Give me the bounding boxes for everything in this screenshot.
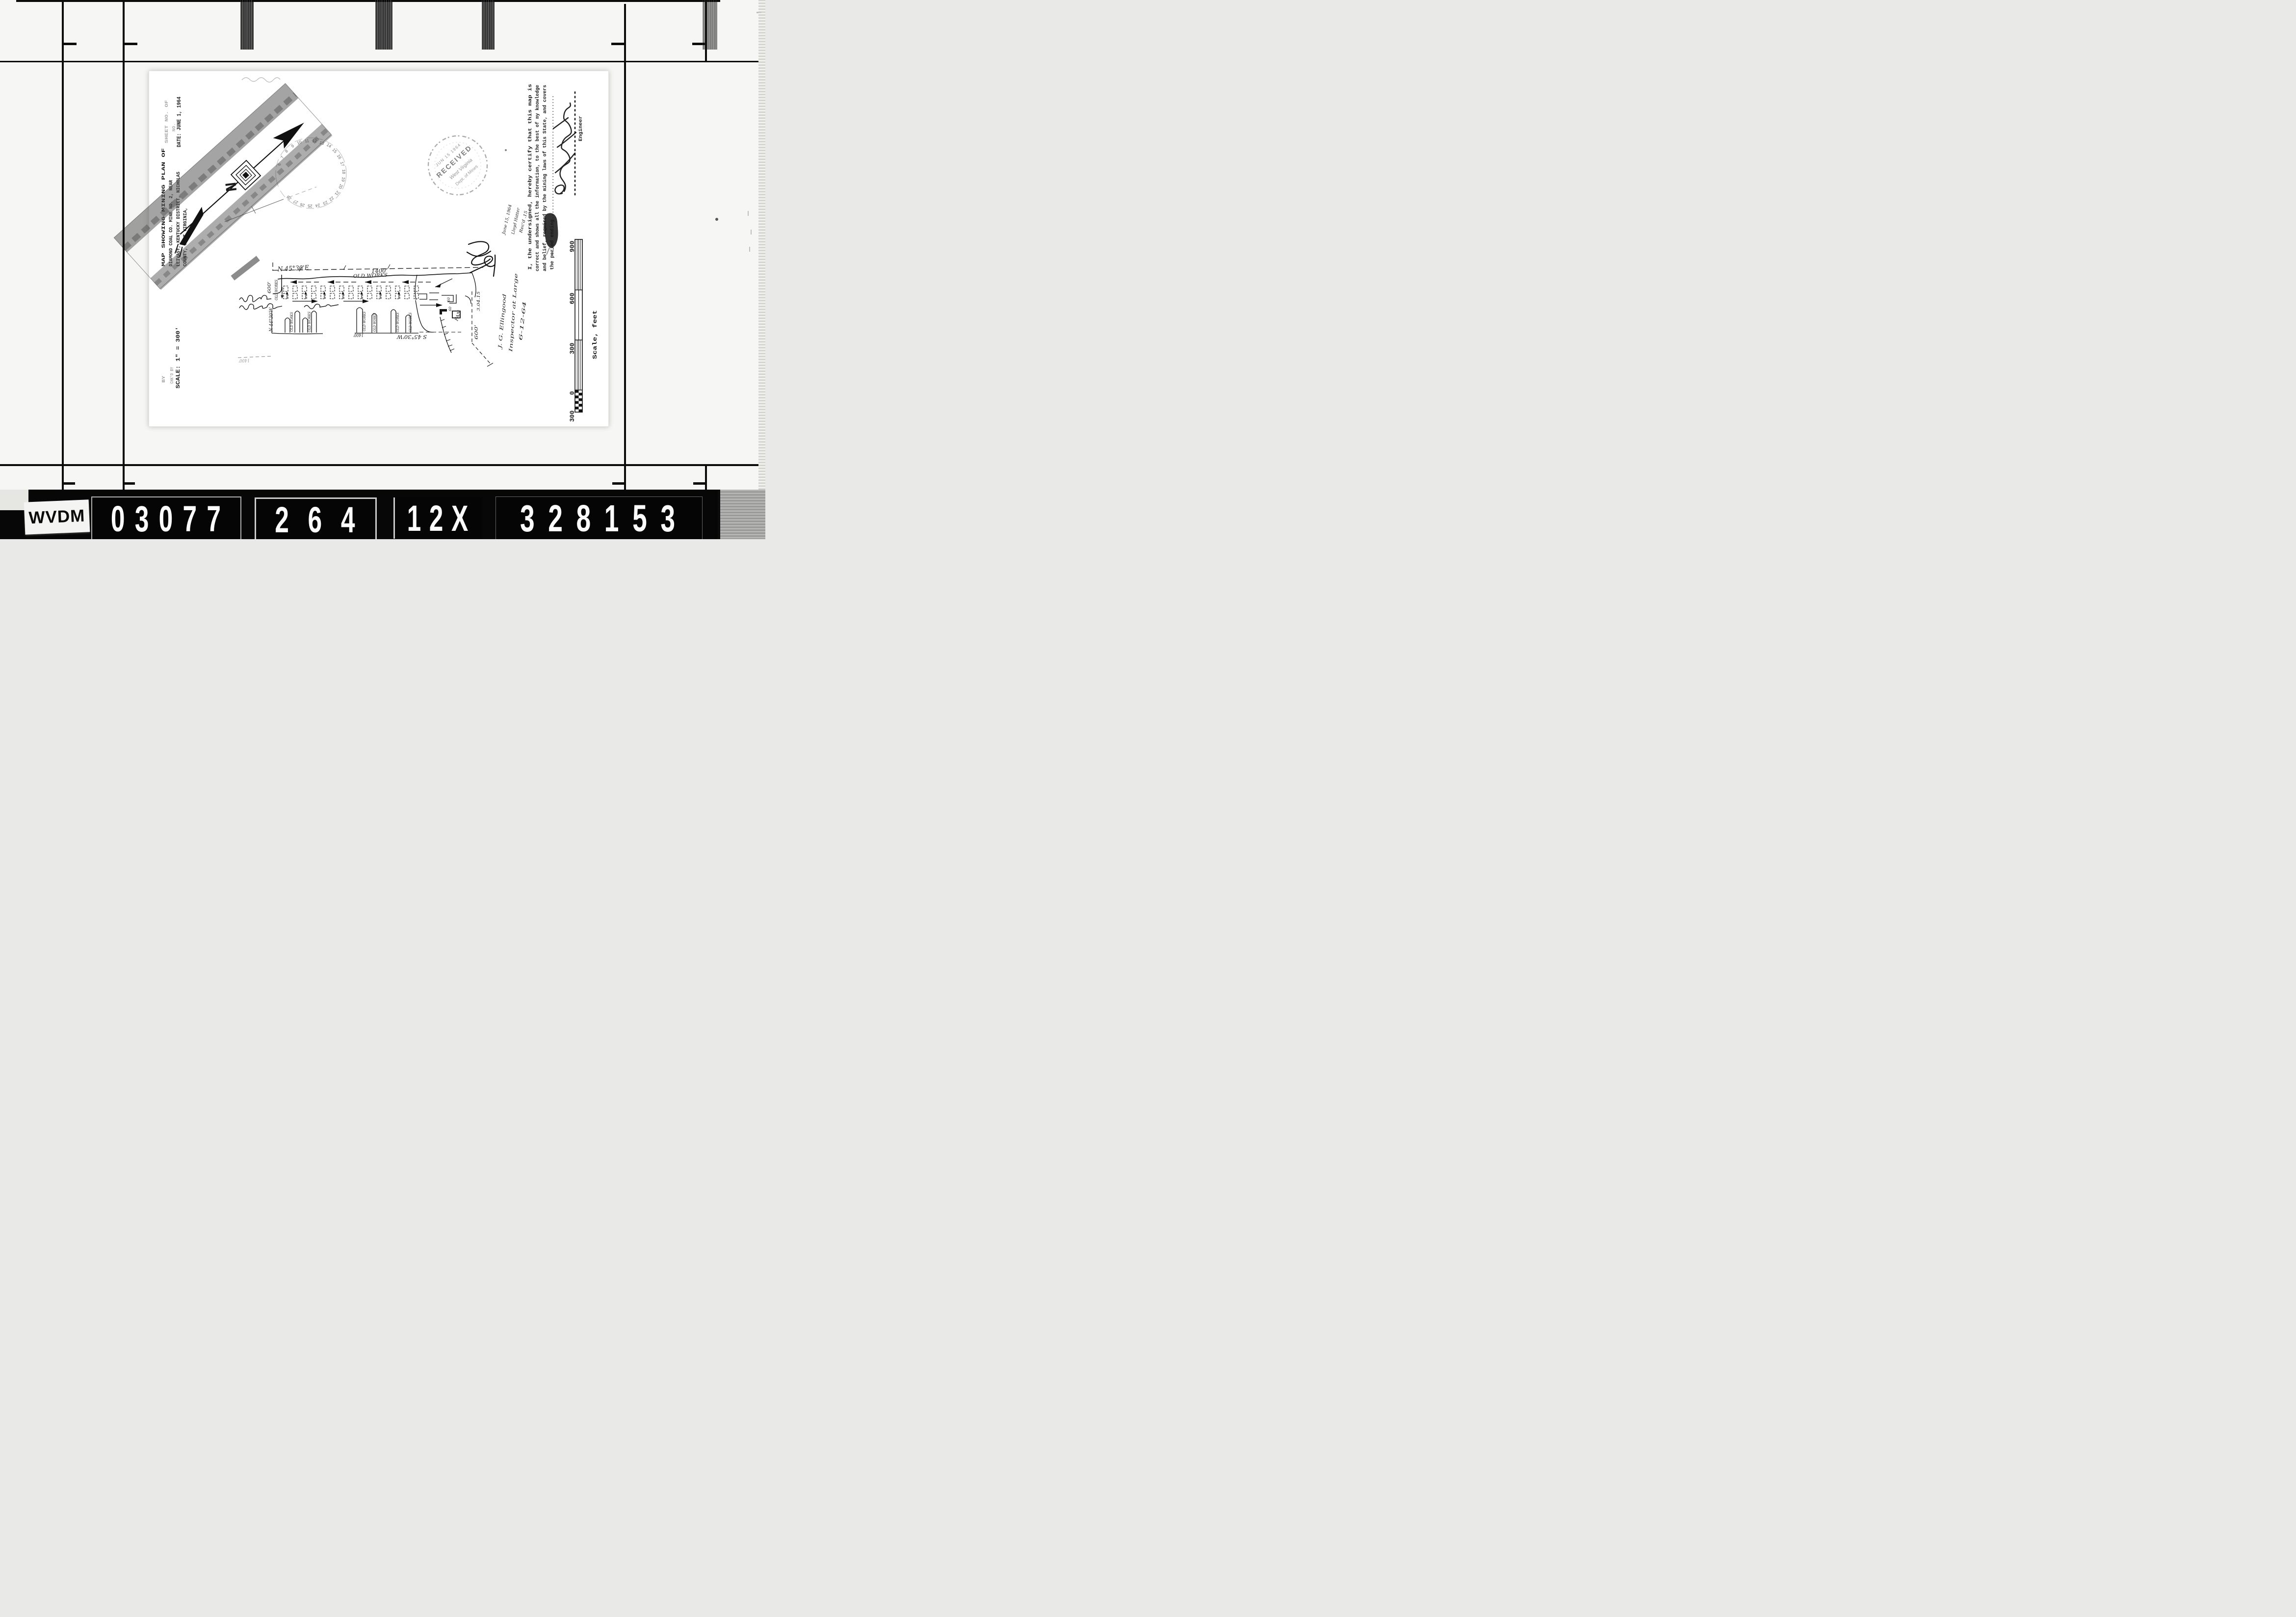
- document-id-plate: 328153: [496, 496, 703, 539]
- inspector-note-line-3: 6-12-64: [518, 301, 527, 341]
- reduction-factor: 12X: [401, 497, 476, 539]
- works-label-6: OLD WORKS: [408, 313, 413, 332]
- hatched-line: [440, 317, 454, 353]
- boundary-bottom-left: [238, 356, 273, 358]
- date-line: DATE: JUNE 1, 1964: [177, 97, 183, 147]
- distance-bottom-left: 1400': [238, 358, 250, 364]
- scale-label-0: 0: [569, 391, 576, 395]
- frame-line-upper: [0, 61, 758, 62]
- frame-number-plate: 264: [255, 497, 377, 539]
- entry-width-1: 60: [447, 297, 451, 302]
- ring-number: 26: [299, 202, 305, 208]
- frame-line-left-2: [123, 0, 125, 490]
- document-content: SHEET NO. OF NO. MAP SHOWING MINING PLAN…: [0, 0, 765, 539]
- works-label-5: OLD WORKS: [395, 313, 400, 332]
- stream-line: [239, 295, 271, 302]
- ring-number: 24: [315, 203, 321, 209]
- ring-number: 17: [339, 161, 345, 167]
- scale-label-600: 600: [569, 292, 576, 304]
- bearing-top: N 45°30'E: [277, 264, 309, 273]
- sheet-no-line: SHEET NO. OF: [164, 100, 169, 143]
- registration-mark: [124, 43, 137, 45]
- registration-mark: [124, 482, 135, 485]
- note-right: 3.04.15: [476, 291, 481, 311]
- stream-line: [239, 304, 339, 310]
- ring-number: 8: [284, 149, 289, 154]
- frame-line-bottom: [0, 464, 758, 466]
- ring-number: 15: [331, 147, 338, 154]
- registration-mark: [693, 482, 705, 485]
- scale-caption: Scale, feet: [592, 310, 599, 359]
- scale-label-900: 900: [569, 240, 576, 252]
- frame-line-right-2b: [705, 464, 707, 490]
- signature-block: Engineer: [553, 90, 584, 195]
- film-grain: [703, 0, 717, 50]
- works-label-3: OLD WORKS: [362, 312, 366, 331]
- works-left-label: OLD WORKS: [274, 280, 279, 300]
- certification-line-2: correct and shows all the information, t…: [535, 85, 541, 271]
- film-edge-noise: [758, 0, 765, 539]
- bearing-bottom: S 45°30'W: [396, 334, 427, 340]
- scale-label-300-left: 300: [569, 410, 576, 422]
- ring-number: 19: [340, 177, 346, 182]
- inspector-note-line-1: J. G. Ellingood: [497, 294, 508, 350]
- works-label-1: OLD WORKS: [289, 312, 294, 332]
- works-label-4: OLD WORKS: [372, 313, 377, 332]
- film-grain-right: [720, 490, 765, 539]
- sheet-edge-mark: [242, 78, 280, 82]
- by-line: BY: [161, 375, 166, 383]
- works-label-2: OLD WORKS: [307, 312, 312, 332]
- scale-bar: 300 0 300 600 900 Scale, feet: [569, 239, 599, 422]
- scale-label-300: 300: [569, 342, 576, 354]
- reduction-plate: 12X: [393, 497, 482, 539]
- microfilm-frame: SHEET NO. OF NO. MAP SHOWING MINING PLAN…: [0, 0, 765, 539]
- ring-number: 25: [308, 204, 313, 209]
- registration-mark: [63, 482, 75, 485]
- ring-number: 14: [326, 142, 333, 149]
- ring-number: 16: [336, 154, 343, 160]
- received-note-line-3: Rec'd .15: [519, 210, 529, 234]
- smudge-streak: [231, 256, 260, 281]
- reel-number: 03077: [102, 497, 231, 539]
- received-stamp: JUN 15 1964 RECEIVED West Virginia Dept.…: [416, 124, 499, 207]
- ring-number: 28: [286, 194, 292, 201]
- ring-number: 21: [334, 190, 340, 197]
- frame-line-bottom-right: [718, 490, 720, 539]
- mine-map: N 45°30'E 1400' OLD WORKS 600' OLD WORKS…: [231, 256, 493, 366]
- frame-line-left-1: [62, 0, 64, 490]
- frame-line-top: [16, 0, 720, 2]
- ring-number: 20: [338, 183, 344, 190]
- ink-speck: [505, 149, 507, 151]
- engineer-title: Engineer: [578, 116, 584, 141]
- film-grain: [375, 0, 392, 50]
- reel-number-plate: 03077: [91, 496, 241, 539]
- ring-number: 18: [341, 169, 346, 174]
- scale-bar-checker: [575, 390, 582, 412]
- pillar-row-upper: [284, 286, 418, 291]
- distance-right: 600': [474, 325, 479, 339]
- inspector-note: J. G. Ellingood Inspector at Large 6-12-…: [497, 273, 528, 353]
- certification-line-1: I, the undersigned, hereby certify that …: [527, 84, 533, 270]
- distance-bottom: 1400': [353, 332, 364, 338]
- received-note: June 15, 1964 Lloyd Hatter Rec'd .15: [501, 204, 529, 236]
- frame-line-right-1: [624, 4, 626, 490]
- no-line: NO.: [171, 123, 177, 131]
- north-label: N: [222, 181, 241, 193]
- registration-mark: [63, 43, 77, 45]
- scale-line: SCALE: 1" = 300': [176, 327, 182, 389]
- ring-number: 27: [292, 199, 299, 205]
- registration-mark: [612, 482, 624, 485]
- film-archive-label: WVDM: [24, 499, 90, 534]
- ring-number: 23: [322, 200, 329, 206]
- ring-number: 9: [290, 143, 295, 149]
- document-id: 328153: [509, 497, 689, 539]
- ring-number: 22: [328, 195, 335, 202]
- engineer-signature: [553, 103, 576, 194]
- film-grain: [482, 0, 495, 50]
- film-grain: [240, 0, 254, 50]
- frame-number: 264: [258, 498, 374, 539]
- inspector-note-line-2: Inspector at Large: [508, 273, 519, 353]
- registration-mark: [611, 43, 624, 45]
- archive-code: WVDM: [28, 506, 85, 528]
- works-top-label: OLD WORKS: [353, 273, 388, 279]
- checked-line: CHK'D BY: [170, 367, 175, 384]
- bearing-left: N 44°30'W: [268, 307, 274, 332]
- scribble-signature: [467, 241, 495, 276]
- airflow-arrows: [281, 279, 453, 307]
- entry-width-2: 60: [448, 307, 452, 311]
- distance-left: 600': [267, 282, 272, 293]
